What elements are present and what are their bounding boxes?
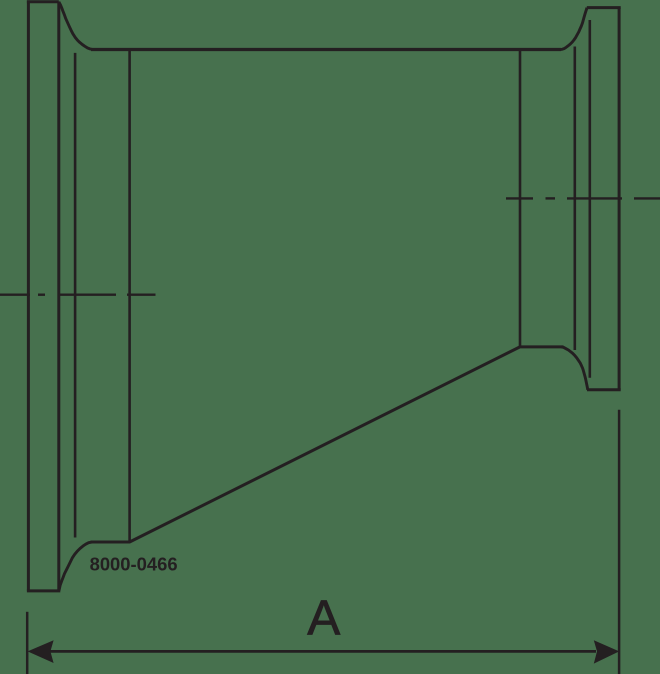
svg-text:8000-0466: 8000-0466 bbox=[90, 554, 178, 575]
svg-text:A: A bbox=[307, 590, 340, 645]
